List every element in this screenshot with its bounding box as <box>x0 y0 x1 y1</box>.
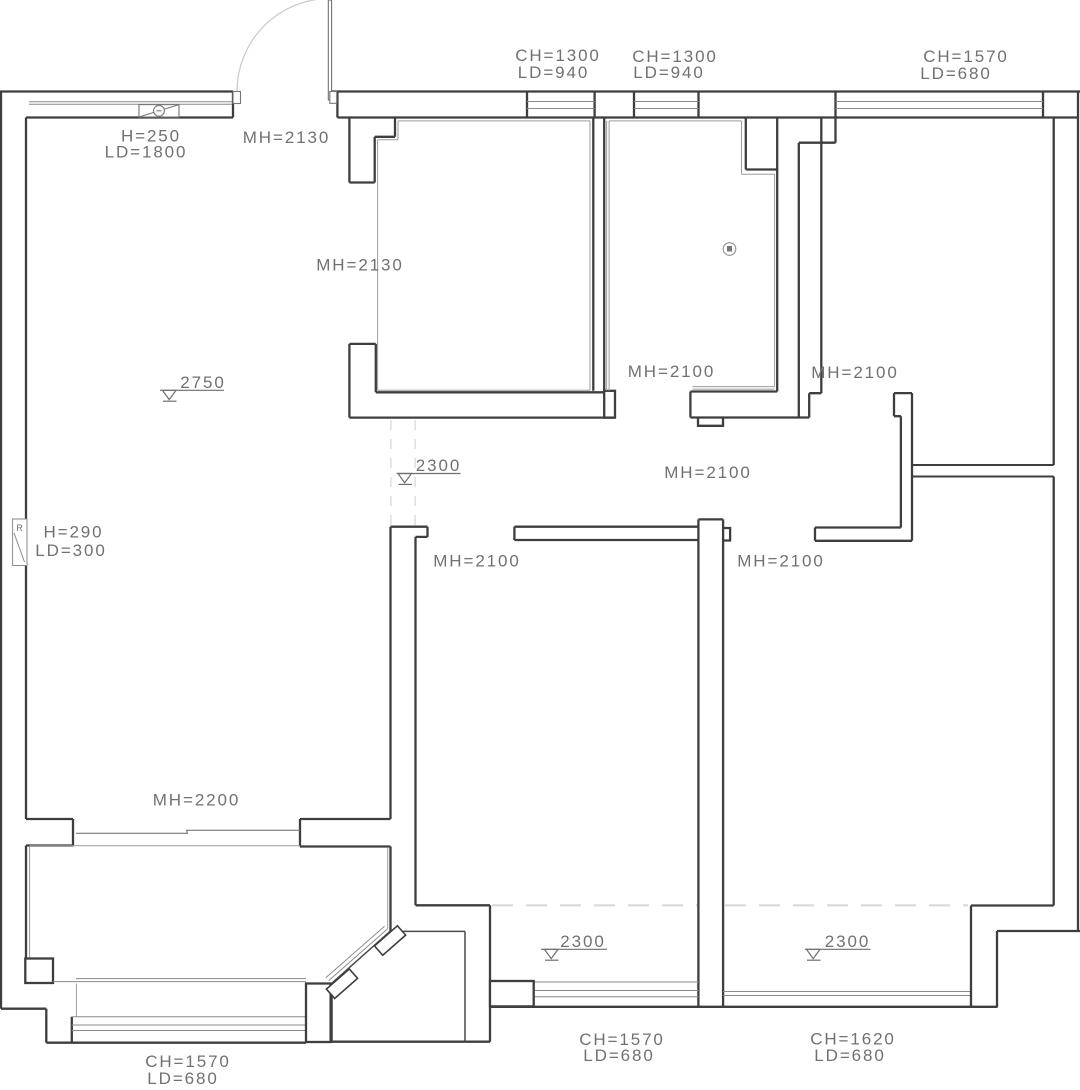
svg-text:R: R <box>16 523 23 533</box>
svg-text:LD=680: LD=680 <box>920 64 991 83</box>
svg-text:LD=940: LD=940 <box>518 63 589 82</box>
svg-text:MH=2100: MH=2100 <box>811 363 898 382</box>
svg-text:MH=2130: MH=2130 <box>316 256 403 275</box>
svg-text:MH=2130: MH=2130 <box>243 128 330 147</box>
svg-text:2300: 2300 <box>416 456 461 475</box>
svg-text:LD=300: LD=300 <box>35 541 106 560</box>
svg-text:LD=680: LD=680 <box>147 1069 218 1085</box>
svg-text:2300: 2300 <box>560 932 605 951</box>
svg-text:MH=2100: MH=2100 <box>628 362 715 381</box>
svg-text:MH=2100: MH=2100 <box>664 463 751 482</box>
svg-text:MH=2200: MH=2200 <box>153 791 240 810</box>
svg-text:2300: 2300 <box>825 932 870 951</box>
svg-text:2750: 2750 <box>180 373 225 392</box>
svg-text:LD=940: LD=940 <box>633 63 704 82</box>
svg-text:MH=2100: MH=2100 <box>433 552 520 571</box>
svg-text:MH=2100: MH=2100 <box>737 552 824 571</box>
svg-text:LD=680: LD=680 <box>583 1046 654 1065</box>
svg-text:H=290: H=290 <box>43 523 103 542</box>
svg-text:LD=680: LD=680 <box>814 1046 885 1065</box>
svg-text:LD=1800: LD=1800 <box>105 143 188 162</box>
